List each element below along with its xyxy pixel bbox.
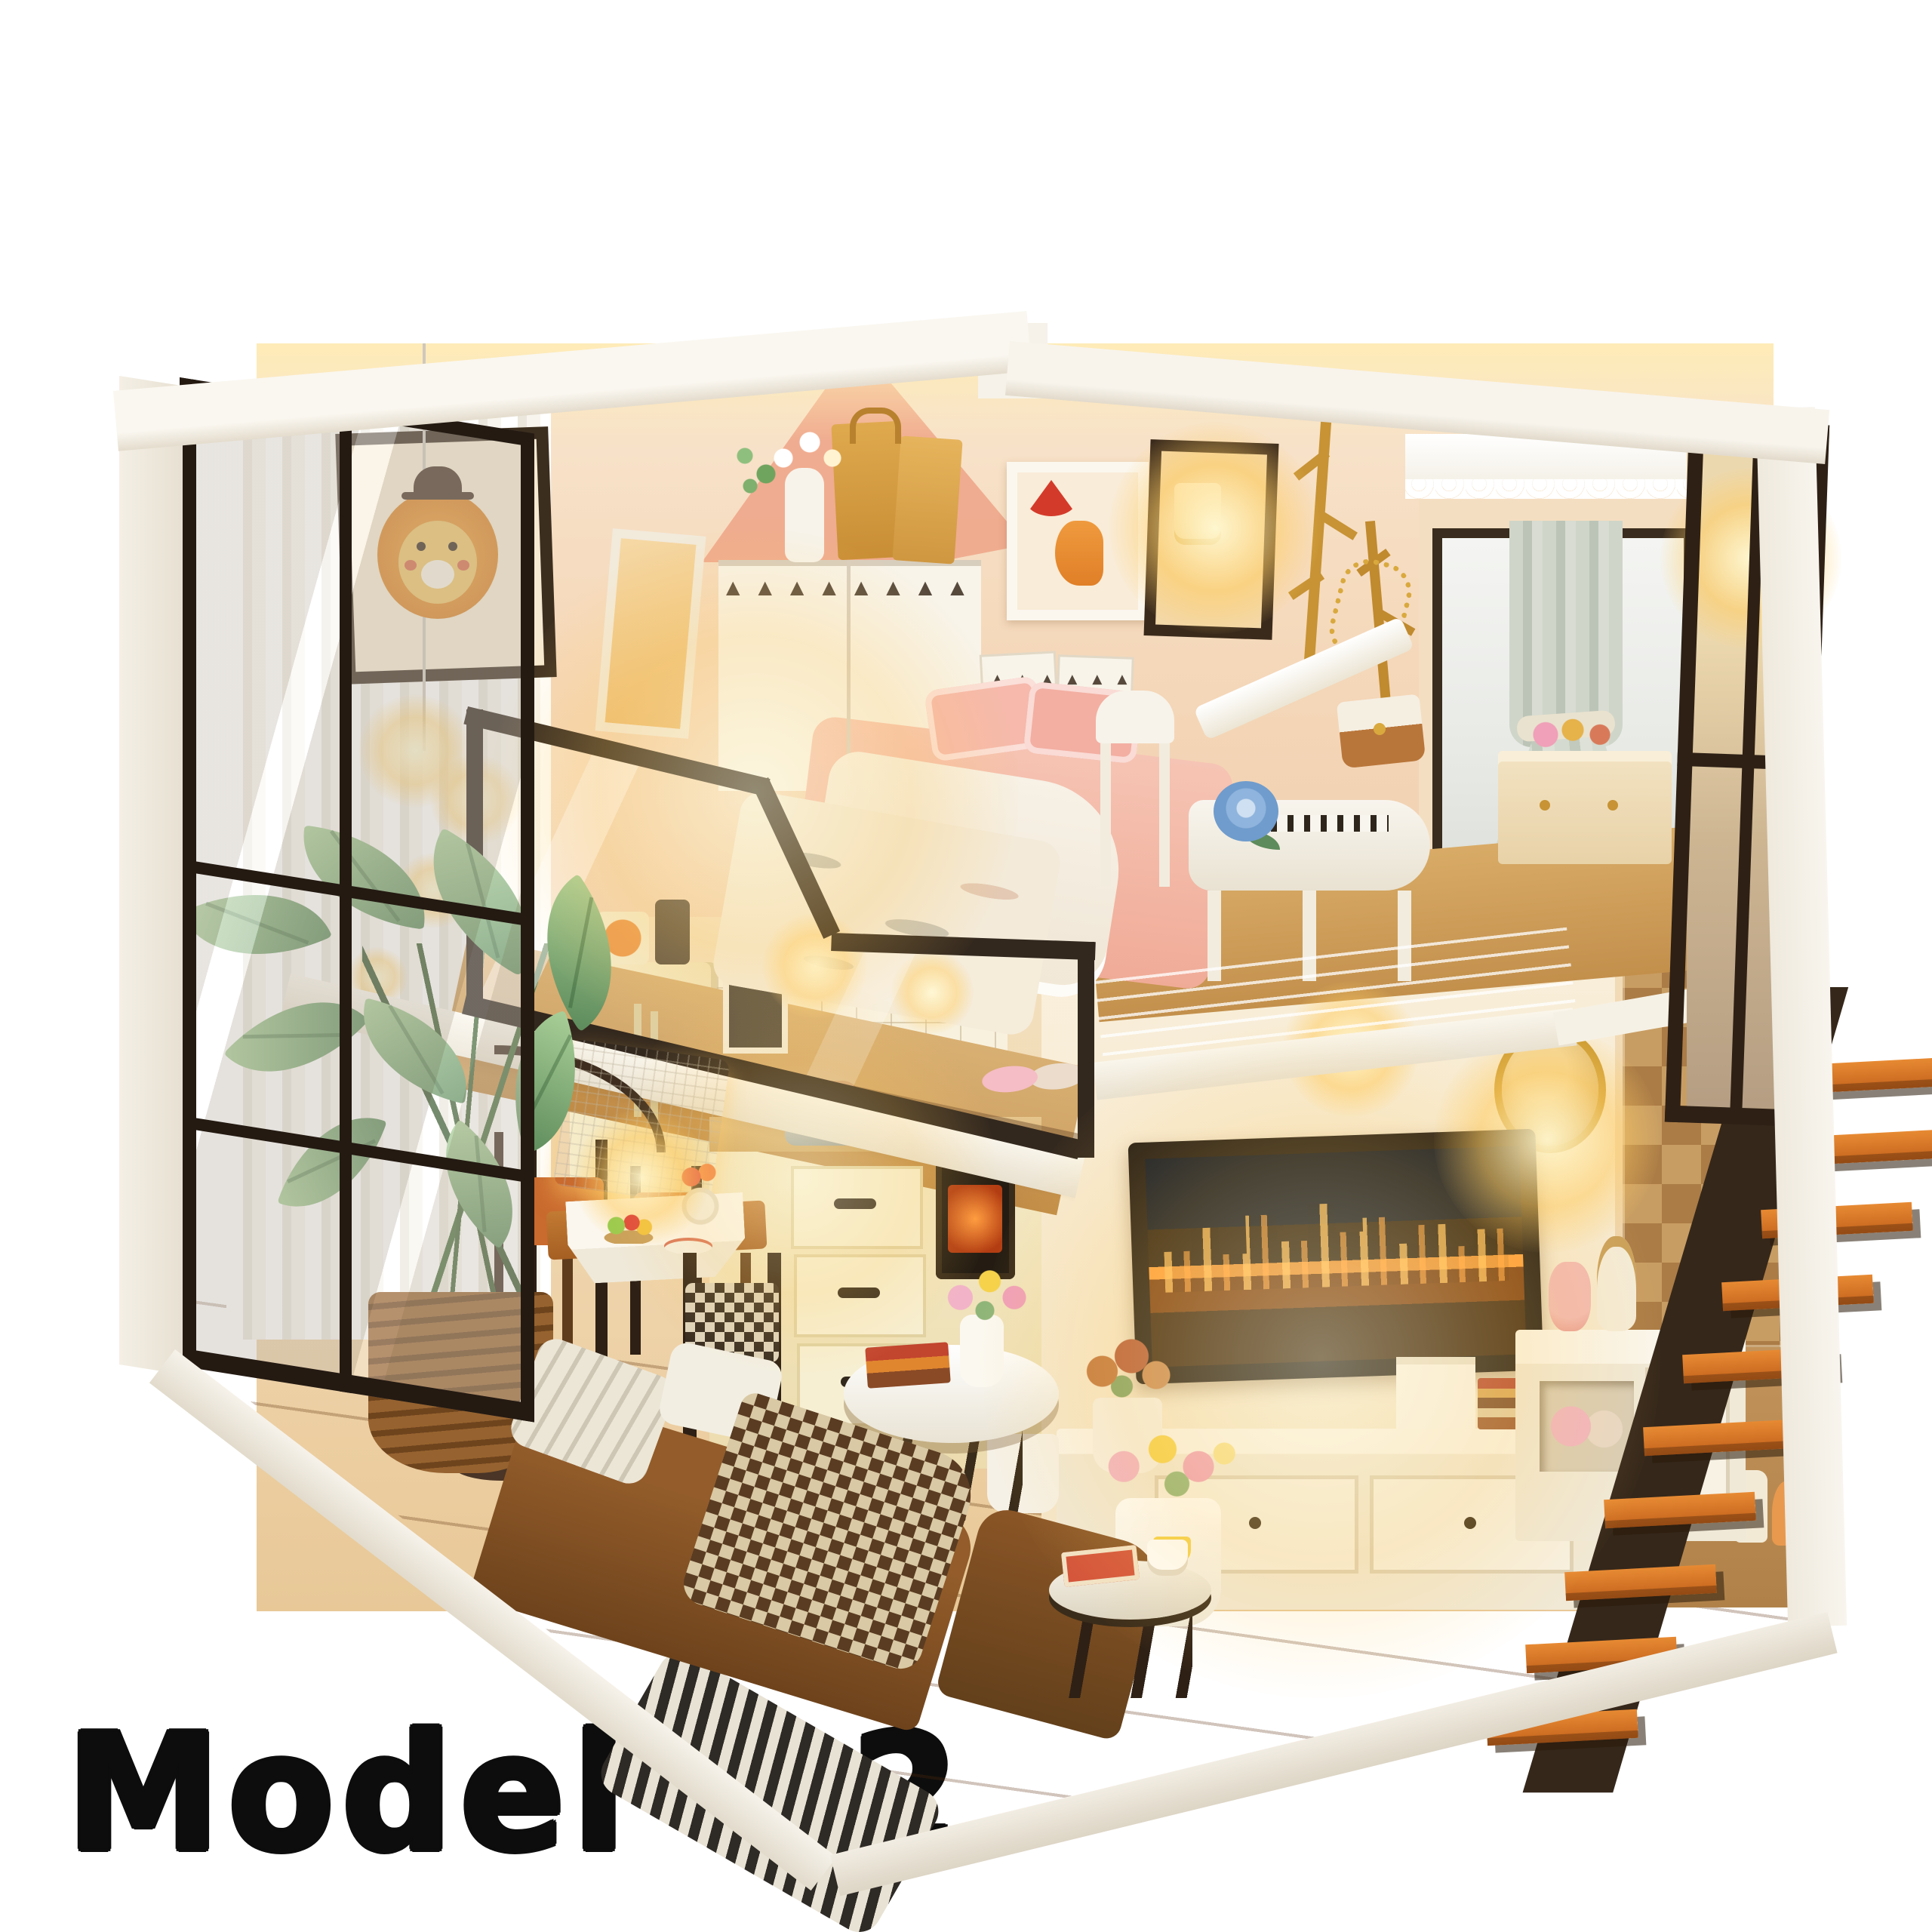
- left-edge-board: [119, 376, 183, 1374]
- desk-knob-1: [1540, 800, 1550, 811]
- handbag-clasp: [1374, 723, 1386, 735]
- dollhouse: ▲▲▲▲▲▲▲▲▲▲▲▲▲▲▲▲▲▲▲▲▲▲▲▲▲▲▲▲▲▲▲▲▲▲▲▲▲▲▲▲…: [0, 0, 1932, 1932]
- red-books: [865, 1342, 950, 1389]
- teacup: [1147, 1540, 1188, 1570]
- drawer-handle-1: [834, 1198, 876, 1209]
- product-photo-canvas: ▲▲▲▲▲▲▲▲▲▲▲▲▲▲▲▲▲▲▲▲▲▲▲▲▲▲▲▲▲▲▲▲▲▲▲▲▲▲▲▲…: [0, 0, 1932, 1932]
- red-flower-vase: [678, 1161, 723, 1226]
- food-plate-1: [664, 1238, 712, 1254]
- tulip-vase-flowers: [936, 1262, 1034, 1327]
- vanity-desk: [1498, 751, 1672, 864]
- glass-curtain-wall: [180, 377, 534, 1422]
- vase-greenery: [729, 438, 782, 498]
- rose-bouquet: [1078, 1330, 1176, 1405]
- desk-bottles: [1532, 702, 1623, 749]
- railing-bar-right: [1078, 942, 1094, 1158]
- desk-knob-2: [1607, 800, 1618, 811]
- stand-knob-1: [1249, 1517, 1261, 1529]
- flower-vase: [785, 468, 824, 562]
- fruit-bowl: [598, 1214, 660, 1244]
- drawer-handle-2: [838, 1287, 880, 1298]
- oven-window-glow: [948, 1185, 1002, 1253]
- blue-rose: [1214, 781, 1278, 841]
- bag-handle: [850, 408, 901, 444]
- tulip-flowers: [1098, 1419, 1241, 1506]
- sconce-shade: [1174, 483, 1221, 539]
- glass-pane-field: [180, 377, 534, 1422]
- white-gift-box: [1396, 1357, 1475, 1429]
- valance-pompoms: [1405, 479, 1700, 499]
- paper-bag-2: [892, 435, 962, 564]
- sconce-lamp-frame: [1144, 439, 1279, 640]
- fox-body: [1055, 521, 1103, 586]
- side-table-legs: [1068, 1607, 1192, 1698]
- white-chair-legs: [1100, 743, 1170, 887]
